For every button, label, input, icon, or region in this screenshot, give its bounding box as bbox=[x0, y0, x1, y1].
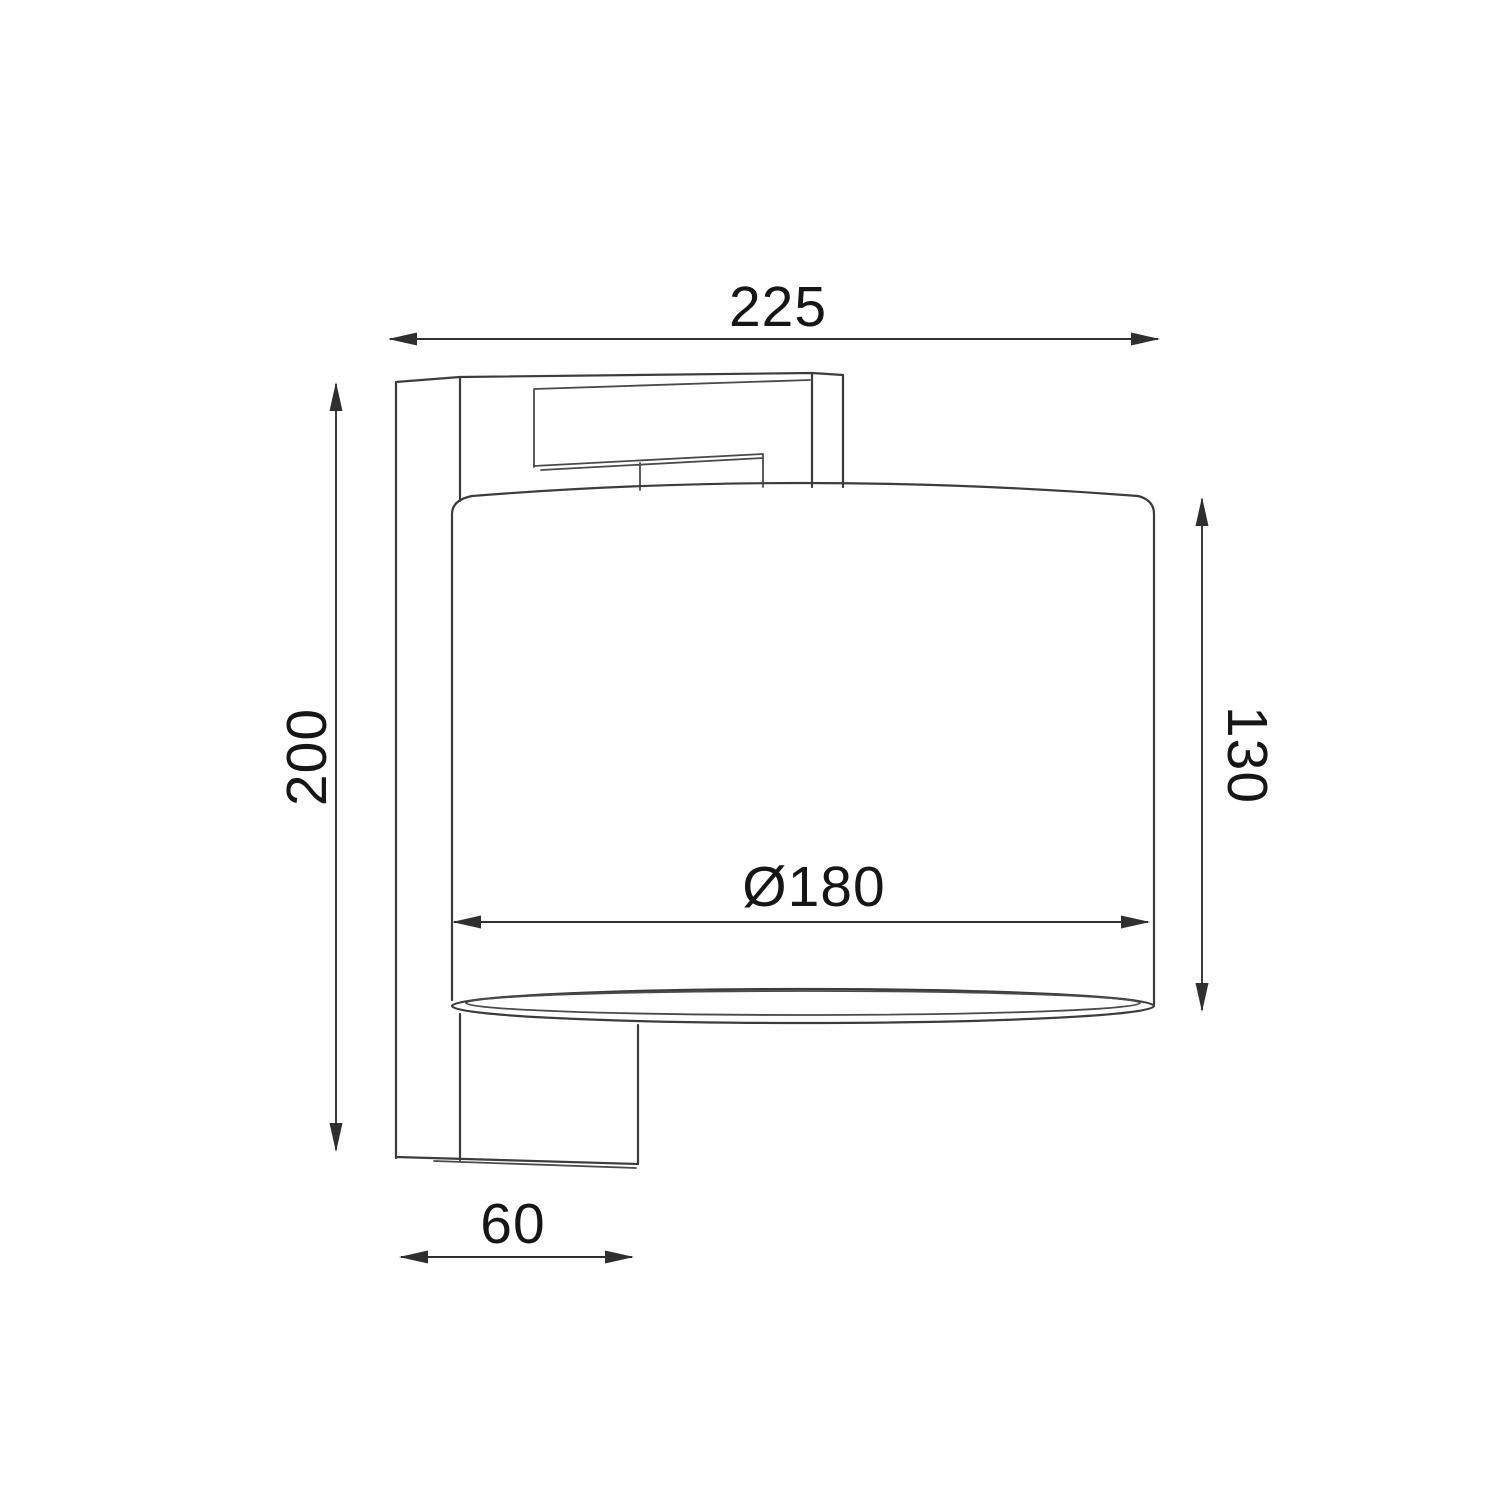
dimension-shade-diameter: Ø180 bbox=[452, 855, 1150, 929]
dimension-label-shade-height: 130 bbox=[1215, 706, 1279, 804]
arrowhead-up-icon bbox=[1196, 497, 1209, 526]
mounting-arm-inner bbox=[534, 380, 810, 467]
dimension-bracket-depth: 60 bbox=[399, 1192, 634, 1264]
dimension-overall-height: 200 bbox=[275, 382, 343, 1152]
arrowhead-left-icon bbox=[399, 1251, 428, 1264]
arrowhead-down-icon bbox=[1196, 983, 1209, 1012]
arrowhead-down-icon bbox=[330, 1123, 343, 1152]
arrowhead-right-icon bbox=[1121, 916, 1150, 929]
shade-body bbox=[452, 483, 1154, 1004]
shade-bottom-rim-inner bbox=[466, 991, 1140, 1015]
drawing-page: 225 200 130 Ø180 60 bbox=[0, 0, 1500, 1500]
dimension-label-shade-diameter: Ø180 bbox=[742, 855, 885, 919]
lamp-outline bbox=[396, 373, 1154, 1168]
dimension-label-overall-height: 200 bbox=[275, 708, 339, 806]
dimension-overall-depth: 225 bbox=[388, 275, 1160, 346]
dimension-label-overall-depth: 225 bbox=[729, 275, 827, 339]
arrowhead-left-icon bbox=[388, 333, 417, 346]
arrowhead-right-icon bbox=[1131, 333, 1160, 346]
wall-lamp-dimension-drawing: 225 200 130 Ø180 60 bbox=[0, 0, 1500, 1500]
mounting-arm-top bbox=[460, 373, 843, 487]
wall-box bbox=[396, 1025, 638, 1164]
dimension-label-bracket-depth: 60 bbox=[480, 1192, 545, 1256]
dimension-shade-height: 130 bbox=[1196, 497, 1280, 1012]
wall-plate bbox=[396, 377, 460, 1160]
arrowhead-left-icon bbox=[452, 916, 481, 929]
arrowhead-right-icon bbox=[605, 1251, 634, 1264]
arrowhead-up-icon bbox=[330, 382, 343, 411]
